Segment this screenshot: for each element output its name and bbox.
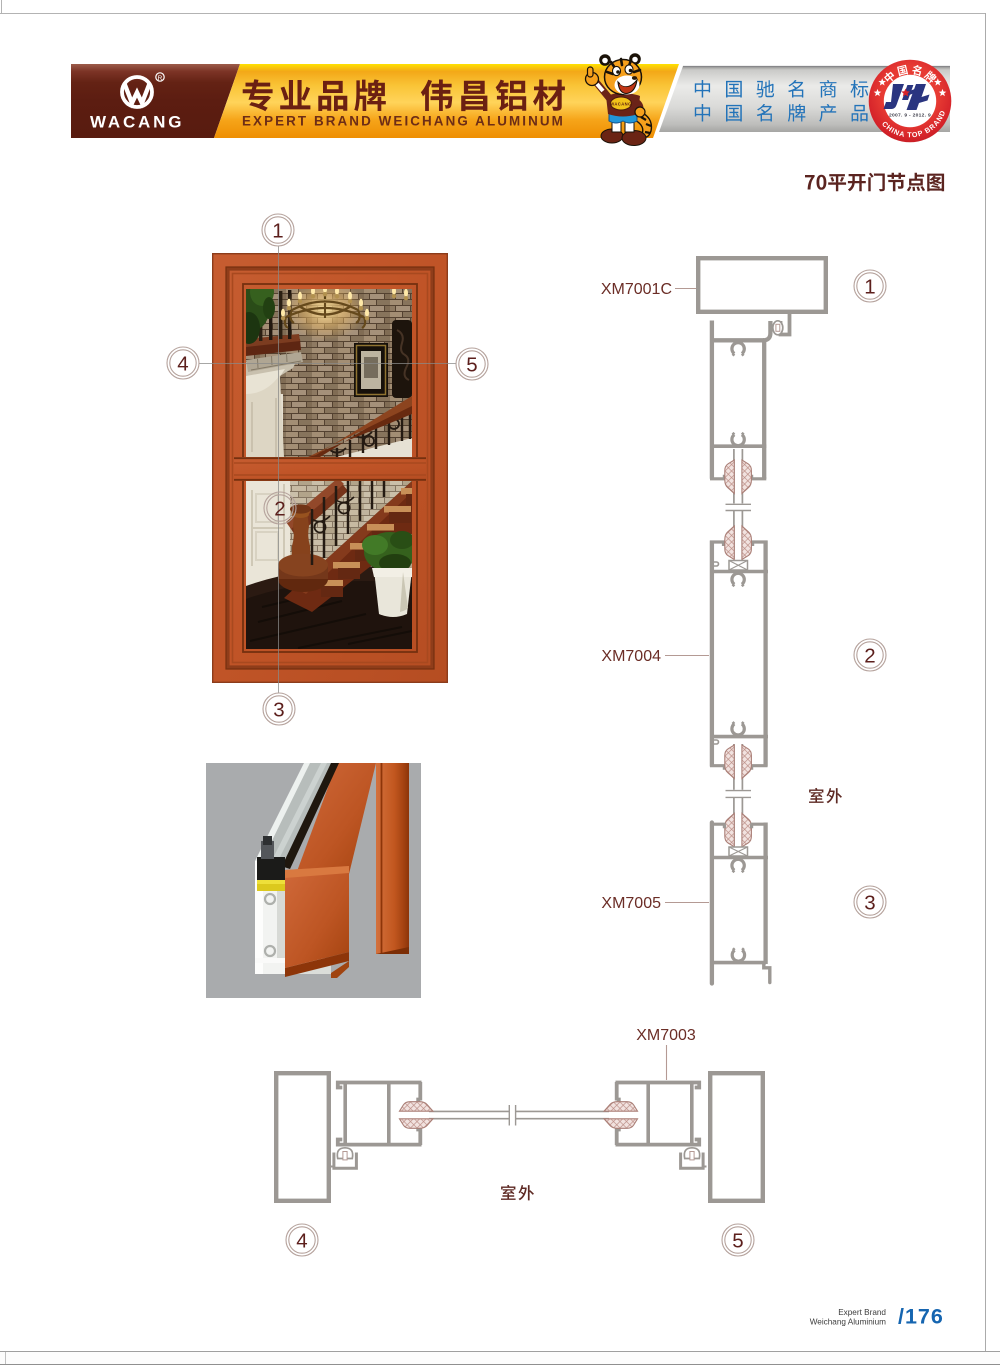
svg-text:EXPERT BRAND WEICHANG ALUMINUM: EXPERT BRAND WEICHANG ALUMINUM	[242, 114, 565, 129]
svg-text:XM7003: XM7003	[636, 1027, 696, 1044]
svg-text:5: 5	[466, 353, 477, 376]
svg-text:2007. 9 - 2012. 9: 2007. 9 - 2012. 9	[889, 113, 931, 119]
svg-text:2: 2	[274, 497, 285, 520]
svg-text:1: 1	[864, 275, 875, 298]
svg-text:4: 4	[177, 352, 188, 375]
svg-text:5: 5	[732, 1229, 743, 1252]
svg-text:XM7005: XM7005	[601, 895, 661, 912]
svg-text:4: 4	[296, 1229, 307, 1252]
svg-text:WACANG: WACANG	[90, 113, 184, 132]
svg-text:3: 3	[273, 698, 284, 721]
svg-text:3: 3	[864, 891, 875, 914]
svg-text:Expert Brand: Expert Brand	[838, 1308, 886, 1317]
svg-text:WACANG: WACANG	[610, 102, 631, 107]
svg-text:XM7004: XM7004	[601, 648, 661, 665]
svg-text:/176: /176	[898, 1305, 944, 1329]
svg-text:Weichang Aluminium: Weichang Aluminium	[810, 1318, 886, 1327]
svg-text:2: 2	[864, 644, 875, 667]
svg-text:R: R	[158, 75, 163, 82]
svg-text:XM7001C: XM7001C	[601, 281, 672, 298]
svg-text:1: 1	[272, 219, 283, 242]
